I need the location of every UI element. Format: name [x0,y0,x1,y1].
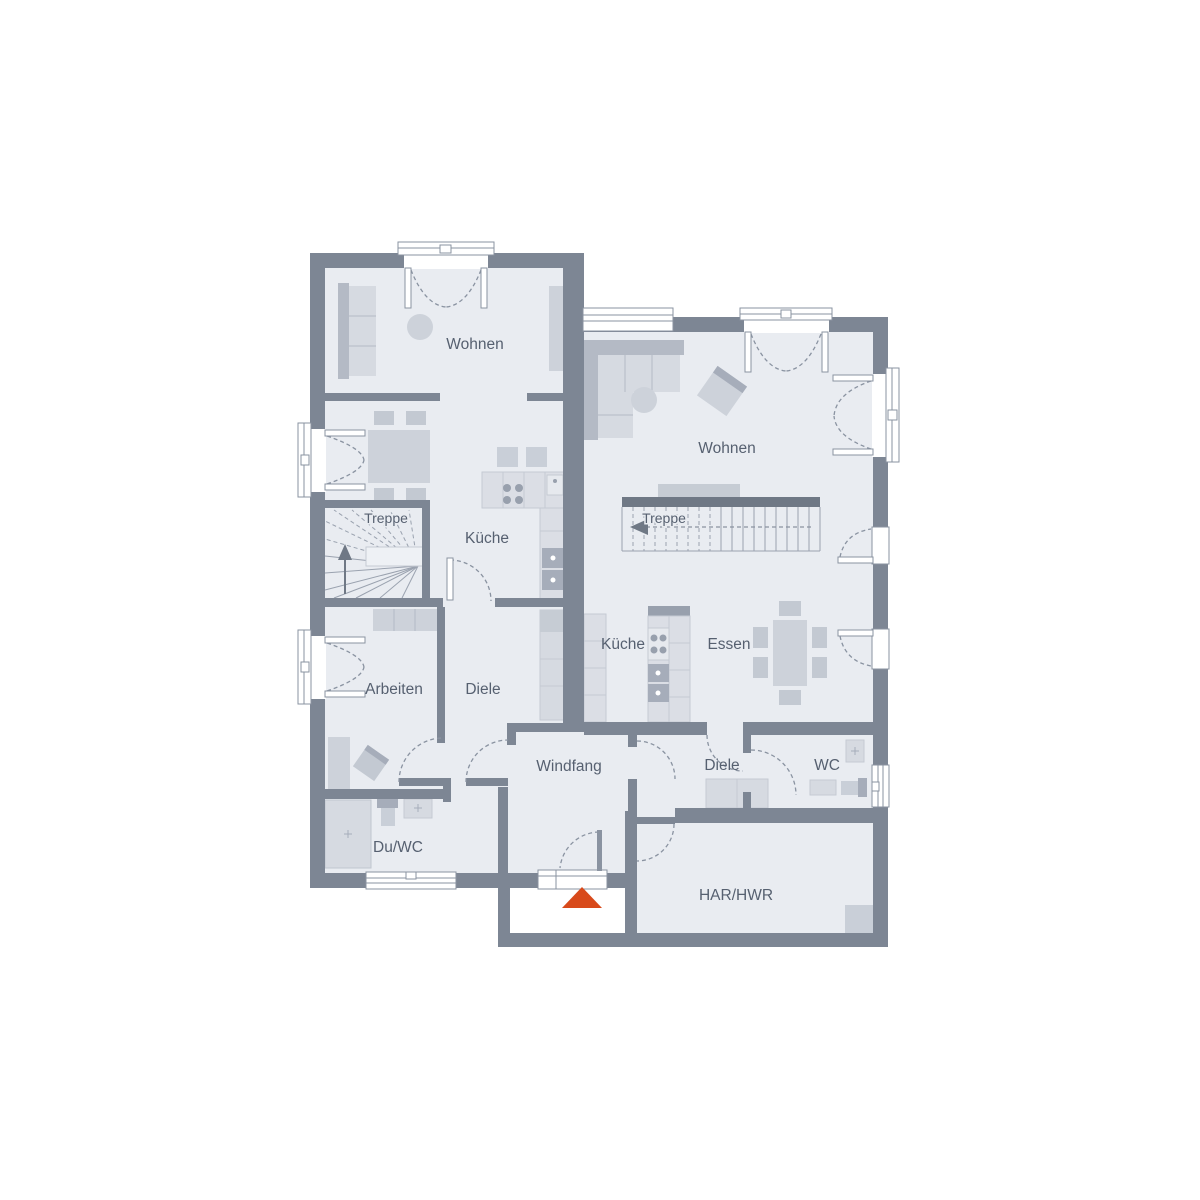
window-wc [872,765,889,807]
wall-segment [498,888,510,933]
wall-segment [743,792,751,808]
wall-segment [310,253,325,888]
room-label-kueche-right: Küche [601,636,645,653]
wall-segment [325,789,443,799]
cabinet [810,780,836,795]
wall-segment [325,500,430,508]
chair [406,411,426,425]
side-table [407,314,433,340]
room-label-kueche-left: Küche [465,530,509,547]
room-label-essen: Essen [707,636,750,653]
corner-sofa [583,340,684,355]
window-duwc [366,872,456,889]
wall-segment [443,778,451,802]
wall-cabinet [497,447,518,467]
kitchen-worktop [648,606,690,616]
dining-table [368,430,430,483]
chair [374,411,394,425]
stair-landing [658,484,740,499]
room-label-windfang: Windfang [536,758,601,775]
furniture-diele-left [540,610,566,720]
side-table [631,387,657,413]
room-label-diele-right: Diele [704,757,739,774]
chair [753,627,768,648]
wall-segment [498,787,508,873]
toilet [858,778,867,797]
room-label-treppe-right: Treppe [642,510,686,526]
floor-plan-canvas: Wohnen Treppe Küche Arbeiten Diele Du/WC… [0,0,1200,1200]
floor-plan-page: Wohnen Treppe Küche Arbeiten Diele Du/WC… [0,0,1200,1200]
wall-segment [743,735,751,753]
chair [812,657,827,678]
chair [406,488,426,502]
desk [328,737,350,790]
tall-cabinet [669,616,690,722]
chair [374,488,394,502]
wall-segment [325,393,440,401]
room-label-wohnen-left: Wohnen [446,336,503,353]
entrance-porch [510,888,625,933]
room-label-treppe-left: Treppe [364,510,408,526]
wall-segment [628,779,637,811]
sofa [338,283,349,379]
furniture-har [845,905,873,933]
wall-cabinet [526,447,547,467]
wall-segment [422,508,430,600]
wall-segment [628,732,637,747]
room-label-arbeiten: Arbeiten [365,681,423,698]
wardrobe [373,609,437,631]
dining-table [773,620,807,686]
room-label-wohnen-right: Wohnen [698,440,755,457]
wall-segment [325,598,443,607]
chair [779,601,801,616]
door-leaf-kueche-diele [447,558,453,600]
wall-segment [507,732,516,745]
utility-unit [845,905,873,933]
toilet [377,799,398,808]
door-leaf [399,778,443,786]
window-top-right-unit [583,308,673,331]
stair-stringer [622,497,820,507]
room-label-wc: WC [814,757,840,774]
wall-segment [584,722,707,735]
room-label-har-hwr: HAR/HWR [699,887,773,904]
wall-segment [743,722,873,735]
wall-segment [625,811,637,933]
chair [753,657,768,678]
wall-segment [495,598,566,607]
stair-cut-marker [366,547,424,566]
door-leaf [466,778,508,786]
room-label-diele-left: Diele [465,681,500,698]
chair [812,627,827,648]
wall-segment [527,393,566,401]
chair [779,690,801,705]
room-label-duwc: Du/WC [373,839,423,856]
kitchen-sink [547,475,563,495]
wall-segment [437,607,445,743]
wall-segment [498,933,888,947]
furniture-diele-right [706,779,768,808]
door-leaf [637,817,675,824]
cooktop [648,628,669,660]
wall-segment [675,808,888,823]
